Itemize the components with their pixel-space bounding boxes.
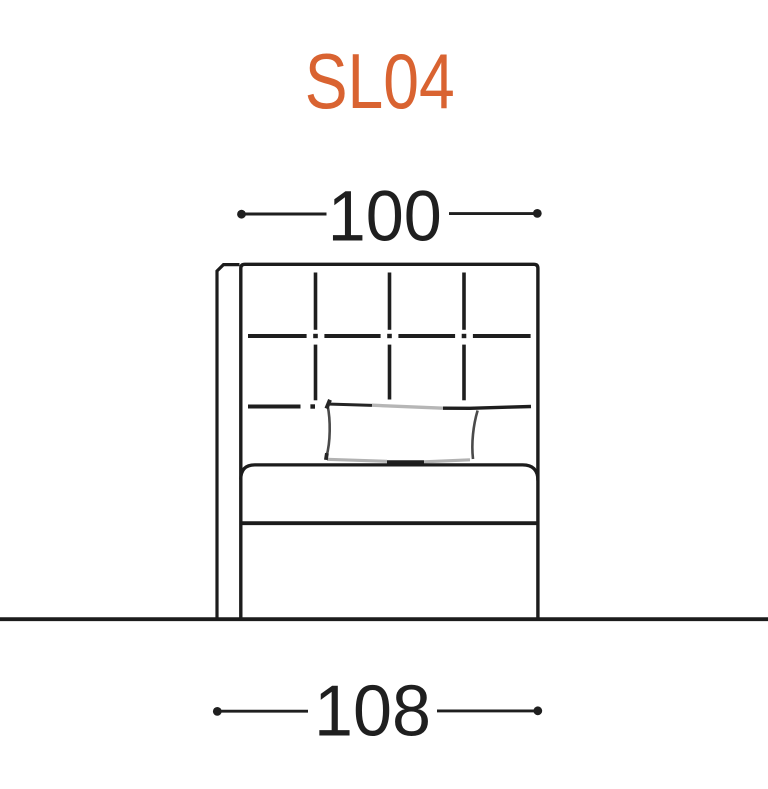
svg-text:SL04: SL04 [305, 37, 455, 125]
svg-text:108: 108 [314, 671, 431, 751]
svg-text:100: 100 [328, 178, 442, 257]
